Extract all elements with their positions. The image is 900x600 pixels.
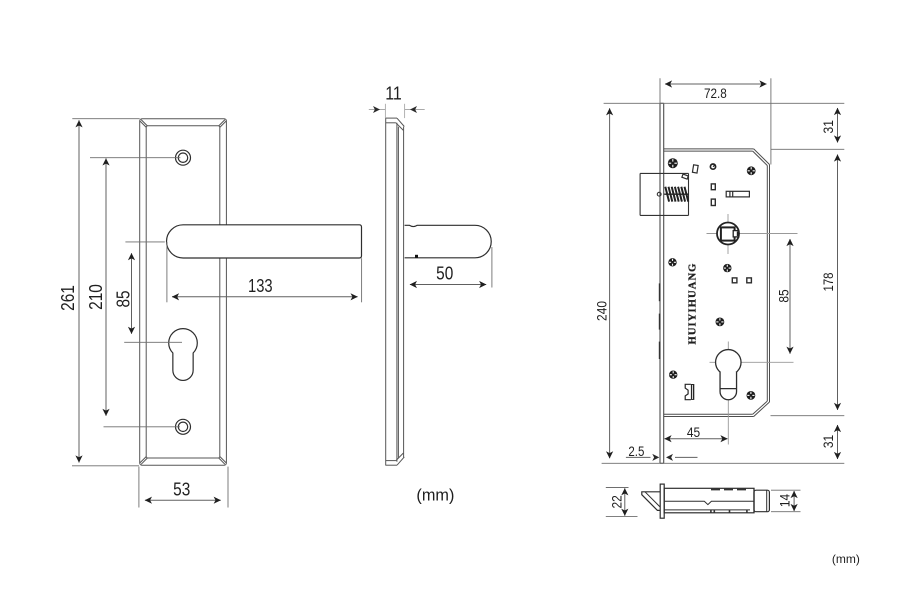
svg-text:14: 14 xyxy=(776,494,792,507)
svg-text:45: 45 xyxy=(687,424,700,440)
svg-text:72.8: 72.8 xyxy=(704,85,727,101)
svg-text:133: 133 xyxy=(248,276,273,296)
svg-text:HUIYIHUANG: HUIYIHUANG xyxy=(687,263,698,345)
svg-text:11: 11 xyxy=(385,84,402,104)
svg-text:2.5: 2.5 xyxy=(628,443,644,459)
svg-text:(mm): (mm) xyxy=(416,486,454,505)
svg-text:(mm): (mm) xyxy=(832,552,860,566)
svg-text:178: 178 xyxy=(820,272,836,291)
svg-text:53: 53 xyxy=(173,480,190,500)
svg-text:31: 31 xyxy=(820,120,836,133)
svg-text:22: 22 xyxy=(608,495,624,508)
svg-text:210: 210 xyxy=(86,284,106,310)
svg-text:240: 240 xyxy=(594,301,610,321)
svg-text:261: 261 xyxy=(58,285,78,311)
svg-text:50: 50 xyxy=(436,263,453,283)
svg-text:31: 31 xyxy=(820,435,836,448)
svg-text:85: 85 xyxy=(776,289,792,302)
svg-text:85: 85 xyxy=(114,290,134,307)
